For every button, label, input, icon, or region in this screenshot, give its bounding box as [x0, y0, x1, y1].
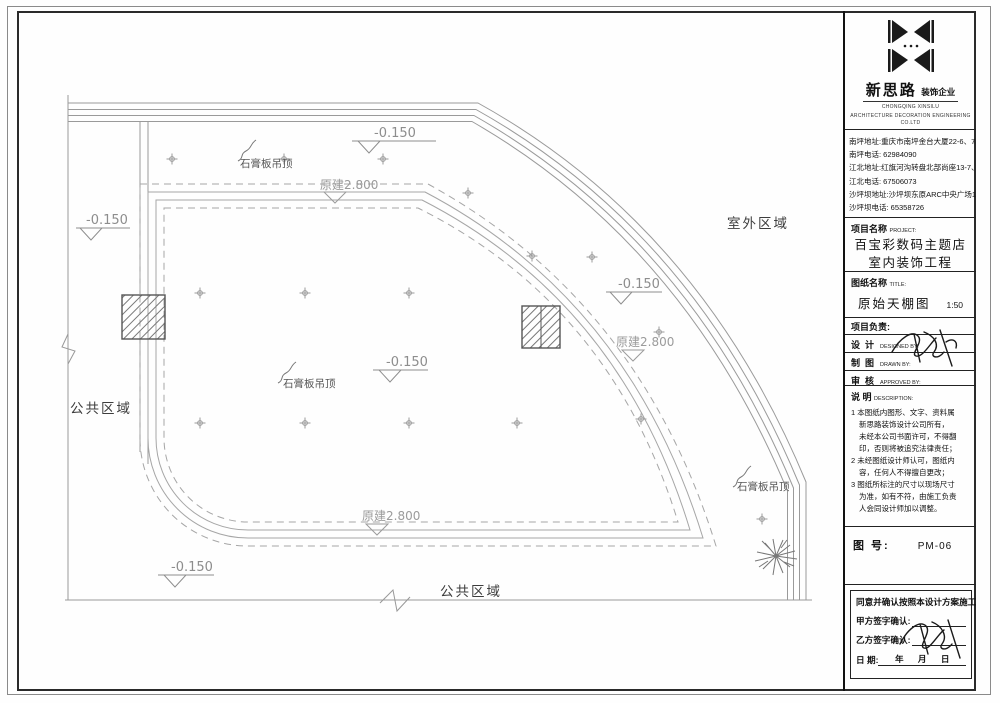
party-a-label: 甲方签字确认:: [856, 615, 910, 627]
confirmation-statement: 同意并确认按照本设计方案施工。: [856, 596, 966, 608]
note-line: 3 图纸所标注的尺寸以现场尺寸: [845, 479, 976, 491]
party-a-signature-row: 甲方签字确认:: [856, 615, 966, 627]
inner-border: [17, 11, 976, 691]
sheet-title-section: 图纸名称 TITLE: 原始天棚图 1:50: [845, 272, 976, 318]
draft-label: 制 图: [851, 356, 874, 369]
party-a-signature-line: [912, 615, 966, 627]
note-line: 新思路装饰设计公司所有，: [845, 419, 976, 431]
notes-label: 说 明: [851, 392, 872, 402]
sheet-name: 原始天棚图: [858, 293, 931, 312]
note-line: 未经本公司书面许可，不得翻: [845, 431, 976, 443]
party-b-label: 乙方签字确认:: [856, 634, 910, 646]
team-row-draft: 制 图 DRAWN BY:: [845, 353, 976, 371]
company-contacts: 南坪地址:重庆市南坪金台大厦22-6、7、9、10 南坪电话: 62984090…: [845, 130, 976, 218]
date-row: 日 期: 年 月 日: [856, 653, 966, 666]
company-logo: [887, 18, 935, 74]
company-en-line2: ARCHITECTURE DECORATION ENGINEERING CO.L…: [845, 113, 976, 127]
project-label: 项目名称: [851, 224, 887, 234]
date-label: 日 期:: [856, 654, 878, 666]
notes-section: 说 明 DESCRIPTION: 1 本图纸内图形、文字、资料属 新思路装饰设计…: [845, 386, 976, 527]
drawing-sheet: -0.150 -0.150 -0.150 -0.150 -0.150 原建2.8…: [0, 0, 1000, 703]
sheet-label-en: TITLE:: [890, 282, 907, 288]
project-name-line2: 室内装饰工程: [845, 256, 976, 271]
note-line: 印，否则将被追究法律责任；: [845, 443, 976, 455]
company-header: 新思路 装饰企业 CHONGQING XINSILU ARCHITECTURE …: [845, 11, 976, 130]
sheet-number-section: 图 号: PM-06: [845, 527, 976, 585]
company-name-row: 新思路 装饰企业: [863, 79, 958, 102]
title-block: 新思路 装饰企业 CHONGQING XINSILU ARCHITECTURE …: [843, 11, 976, 691]
team-header: 项目负责:: [845, 318, 976, 335]
note-line: 2 未经图纸设计师认可，图纸内: [845, 455, 976, 467]
sheet-number-value: PM-06: [918, 541, 952, 552]
design-label-en: DESIGNED BY:: [880, 344, 919, 350]
date-value: 年 月 日: [878, 653, 966, 666]
company-type: 装饰企业: [921, 87, 955, 97]
review-label: 审 核: [851, 374, 874, 386]
party-b-signature-row: 乙方签字确认:: [856, 634, 966, 646]
confirmation-box: 同意并确认按照本设计方案施工。 甲方签字确认: 乙方签字确认: 日 期: 年 月…: [850, 590, 972, 679]
note-line: 为准，如有不符，由施工负责: [845, 491, 976, 503]
contact-line: 江北电话: 67506073: [849, 175, 972, 188]
note-line: 人会同设计师加以调整。: [845, 503, 976, 515]
contact-line: 沙坪坝地址:沙坪坝东原ARC中央广场1-10-3: [849, 188, 972, 201]
notes-label-en: DESCRIPTION:: [874, 396, 913, 402]
company-name: 新思路: [866, 82, 917, 99]
contact-line: 南坪电话: 62984090: [849, 148, 972, 161]
design-label: 设 计: [851, 338, 874, 351]
contact-line: 沙坪坝电话: 65358726: [849, 201, 972, 214]
contact-line: 江北地址:红旗河沟转盘北部尚座13-7、8、9: [849, 161, 972, 174]
team-section: 项目负责: 设 计 DESIGNED BY: 制 图 DRAWN BY: 审 核…: [845, 318, 976, 386]
team-row-review: 审 核 APPROVED BY:: [845, 371, 976, 386]
sheet-scale: 1:50: [946, 300, 963, 310]
note-line: 1 本图纸内图形、文字、资料属: [845, 407, 976, 419]
confirmation-section: 同意并确认按照本设计方案施工。 甲方签字确认: 乙方签字确认: 日 期: 年 月…: [845, 585, 976, 691]
note-line: 容，任何人不得擅自更改；: [845, 467, 976, 479]
party-b-signature-line: [912, 634, 966, 646]
contact-line: 南坪地址:重庆市南坪金台大厦22-6、7、9、10: [849, 135, 972, 148]
project-name-line1: 百宝彩数码主题店: [845, 238, 976, 253]
project-label-en: PROJECT:: [890, 228, 917, 234]
sheet-number-label: 图 号:: [853, 537, 890, 553]
company-en-line1: CHONGQING XINSILU: [845, 104, 976, 111]
project-section: 项目名称 PROJECT: 百宝彩数码主题店 室内装饰工程: [845, 218, 976, 272]
team-row-design: 设 计 DESIGNED BY:: [845, 335, 976, 353]
sheet-label: 图纸名称: [851, 278, 887, 288]
draft-label-en: DRAWN BY:: [880, 362, 911, 368]
